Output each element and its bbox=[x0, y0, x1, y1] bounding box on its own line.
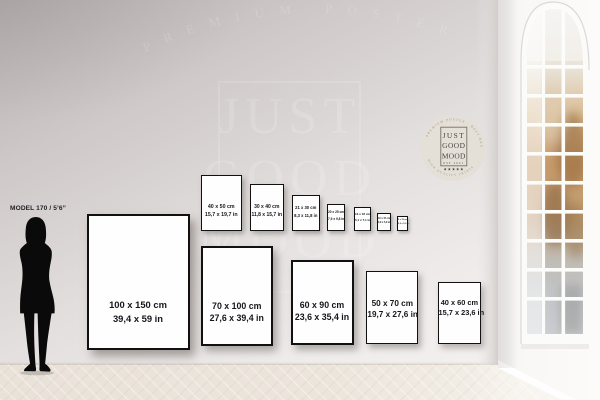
svg-text:GOOD: GOOD bbox=[442, 141, 466, 150]
svg-text:JUST: JUST bbox=[443, 131, 465, 140]
svg-text:P R E M I U M P O S T E R: P R E M I U M P O S T E R bbox=[140, 1, 456, 55]
svg-text:MOOD: MOOD bbox=[442, 152, 466, 161]
svg-text:JUST: JUST bbox=[219, 88, 361, 145]
svg-text:★★★★★: ★★★★★ bbox=[443, 167, 464, 172]
svg-text:EST 2021: EST 2021 bbox=[443, 162, 464, 165]
